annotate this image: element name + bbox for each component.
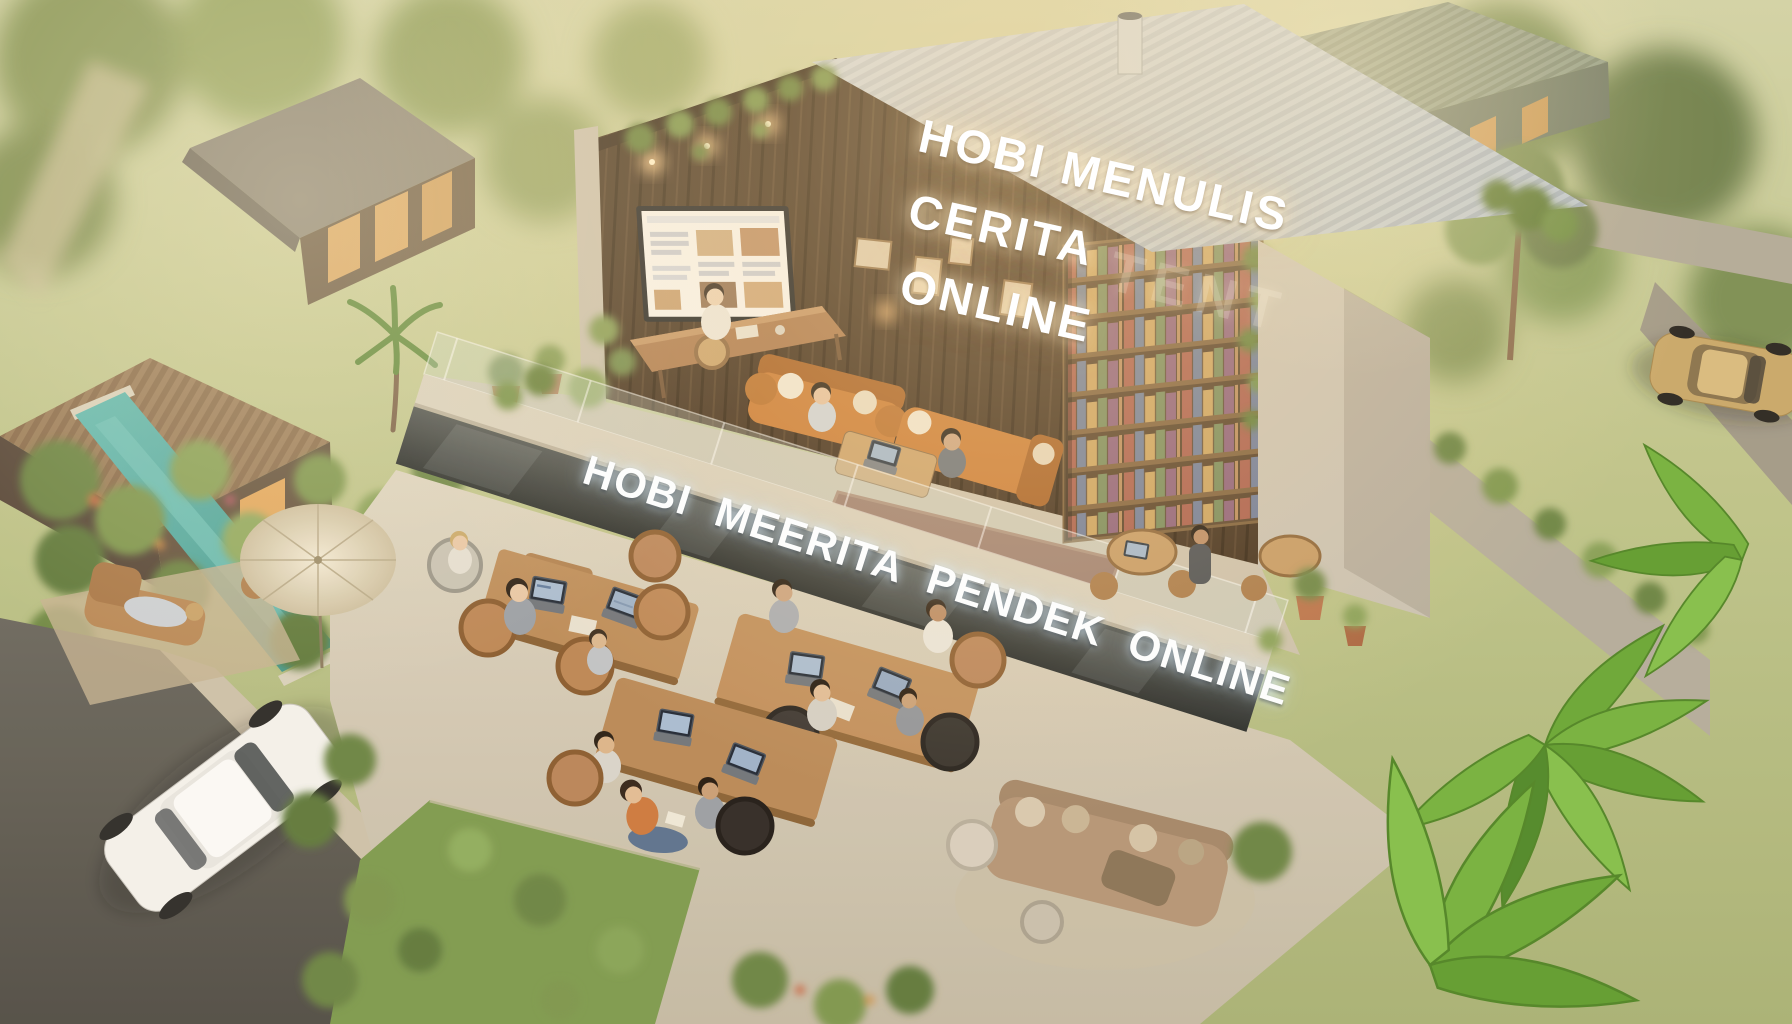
mug xyxy=(775,325,785,335)
chair xyxy=(696,336,728,368)
person xyxy=(1189,525,1211,584)
pouf xyxy=(1022,902,1062,942)
pouf xyxy=(948,821,996,869)
chair xyxy=(631,532,679,580)
chair xyxy=(636,586,688,638)
person-body xyxy=(1189,544,1211,584)
chair xyxy=(718,799,772,853)
stool xyxy=(1241,575,1267,601)
chimney xyxy=(1118,16,1142,74)
car-roof xyxy=(1696,348,1749,399)
stool xyxy=(1090,572,1118,600)
scene: HOBI MENULIS CERITA ONLINE TENT HOBI MEE… xyxy=(0,0,1792,1024)
scene-illustration xyxy=(0,0,1792,1024)
chair xyxy=(549,752,601,804)
laptop xyxy=(653,709,696,747)
plant xyxy=(1232,822,1292,882)
chair xyxy=(923,715,977,769)
chair xyxy=(952,634,1004,686)
chimney-top xyxy=(1118,12,1142,20)
gable-shade xyxy=(1344,288,1430,618)
